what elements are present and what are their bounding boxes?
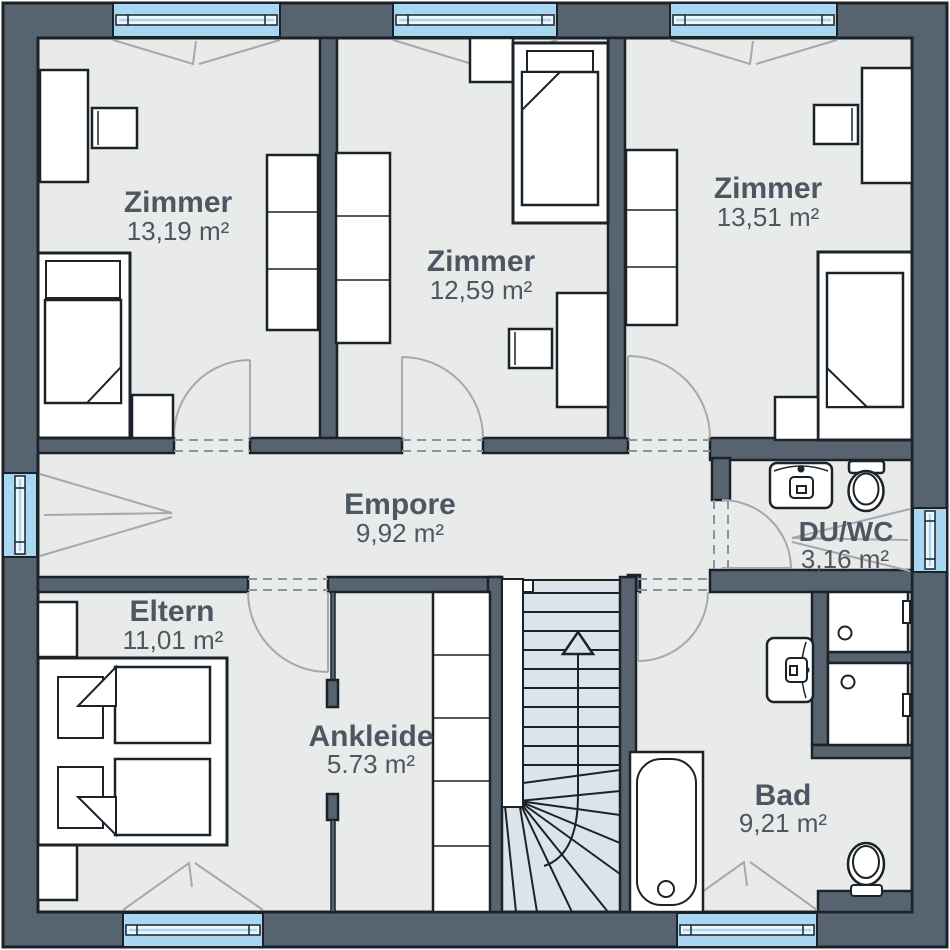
- wall-empore-top-a: [38, 438, 174, 453]
- pillow: [46, 261, 120, 298]
- wardrobe: [433, 592, 490, 912]
- nightstand: [38, 845, 77, 900]
- wall-zimmer1-zimmer2: [320, 38, 337, 438]
- wall-eltern-ankleide-upper: [331, 592, 335, 680]
- nightstand: [470, 38, 513, 82]
- mattress: [115, 667, 210, 743]
- wall-eltern-ankleide-stub2: [327, 794, 338, 820]
- wall-empore-top-c: [483, 438, 628, 453]
- furniture-ankleide: [433, 592, 490, 912]
- room-area-bad: 9,21 m²: [739, 808, 827, 838]
- wall-empore-top-b: [250, 438, 402, 453]
- wall-duwc-left-stub: [712, 458, 730, 500]
- desk: [40, 70, 88, 182]
- desk: [557, 293, 608, 407]
- toilet: [848, 843, 884, 896]
- shower: [828, 663, 910, 745]
- floor-plan: Zimmer 13,19 m² Zimmer 12,59 m² Zimmer 1…: [0, 0, 950, 950]
- room-label-eltern: Eltern: [129, 595, 214, 628]
- wall-eltern-ankleide-stub1: [327, 680, 338, 707]
- wall-below-showers: [812, 745, 912, 758]
- room-label-zimmer3: Zimmer: [714, 172, 823, 205]
- wall-eltern-top: [38, 577, 248, 592]
- floor-plan-svg: Zimmer 13,19 m² Zimmer 12,59 m² Zimmer 1…: [0, 0, 950, 950]
- wall-zimmer2-zimmer3: [608, 38, 625, 438]
- washbasin: [767, 638, 813, 702]
- room-area-zimmer3: 13,51 m²: [717, 202, 820, 232]
- fixtures-duwc: [770, 461, 884, 511]
- mattress: [115, 759, 210, 835]
- washbasin: [770, 463, 832, 508]
- wall-ankleide-top: [328, 577, 502, 592]
- room-label-empore: Empore: [344, 488, 456, 521]
- shelf: [267, 155, 318, 330]
- toilet: [849, 461, 885, 511]
- stair-railing: [502, 579, 523, 807]
- room-area-ankleide: 5.73 m²: [327, 749, 415, 779]
- stair-railing-post: [523, 580, 533, 592]
- room-area-empore: 9,92 m²: [356, 518, 444, 548]
- nightstand: [132, 395, 173, 438]
- wall-shower-divider: [828, 652, 912, 663]
- room-area-zimmer1: 13,19 m²: [127, 216, 230, 246]
- room-area-duwc: 3,16 m²: [801, 544, 889, 574]
- desk: [862, 68, 912, 183]
- bathtub: [630, 752, 703, 912]
- nightstand: [775, 397, 818, 440]
- shower: [828, 592, 910, 652]
- shelf: [626, 150, 677, 325]
- room-label-zimmer1: Zimmer: [124, 186, 233, 219]
- pillow: [527, 51, 593, 72]
- shelf: [336, 153, 390, 343]
- nightstand: [38, 602, 77, 657]
- room-label-zimmer2: Zimmer: [427, 245, 536, 278]
- wall-bad-shower: [812, 592, 828, 745]
- room-label-duwc: DU/WC: [799, 516, 894, 547]
- room-area-eltern: 11,01 m²: [123, 625, 224, 655]
- wall-eltern-ankleide-lower: [331, 820, 335, 912]
- room-area-zimmer2: 12,59 m²: [430, 275, 533, 305]
